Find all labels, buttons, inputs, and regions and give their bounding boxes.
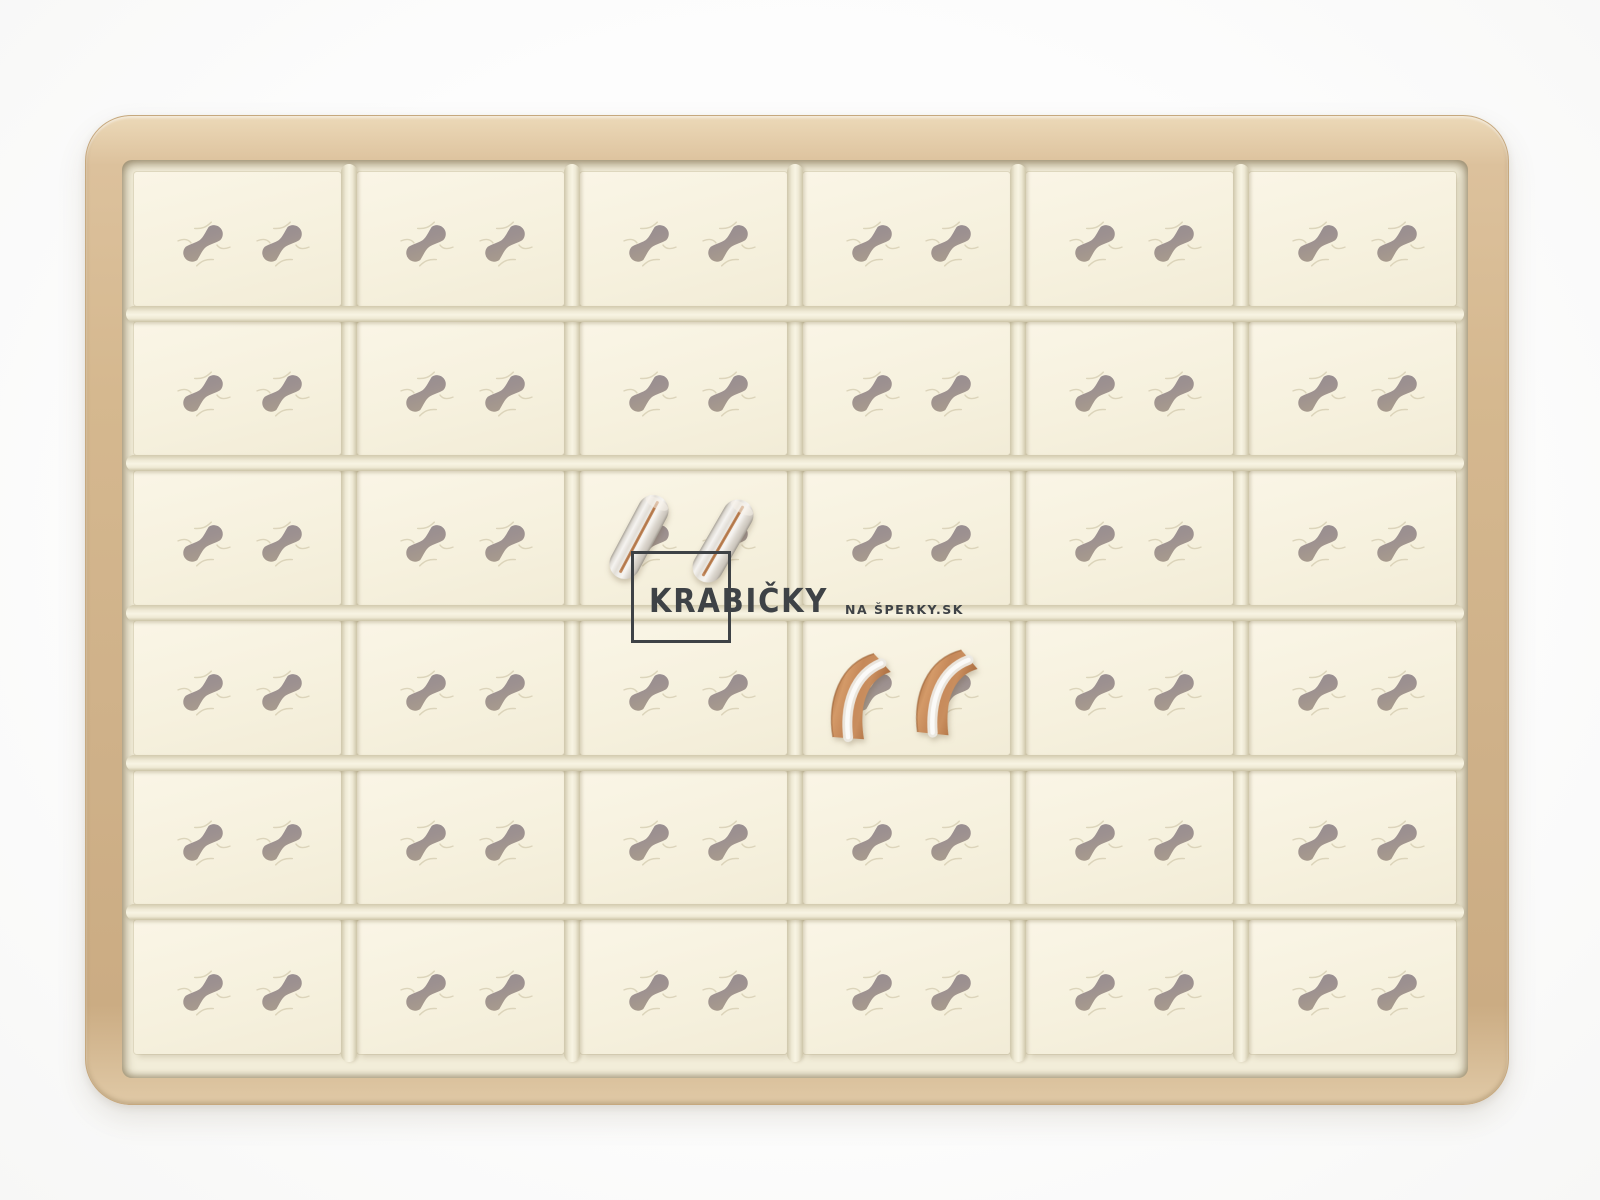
ring-slot-cutout <box>479 819 533 867</box>
ring-slot-cutout <box>1069 669 1123 717</box>
divider-rail-horizontal <box>126 455 1464 471</box>
ring-slot-cutout <box>702 969 756 1017</box>
ring-slot-cutout <box>479 220 533 268</box>
compartment-cell <box>580 621 787 755</box>
ring-slot-cutout <box>177 669 231 717</box>
ring-slot-cutout <box>256 669 310 717</box>
compartment-cell <box>1249 471 1456 605</box>
compartment-cell <box>580 172 787 306</box>
compartment-cell <box>580 771 787 905</box>
ring-slot-cutout <box>479 969 533 1017</box>
ring-slot-cutout <box>256 370 310 418</box>
ring-slot-cutout <box>1148 969 1202 1017</box>
divider-rail-horizontal <box>126 904 1464 920</box>
ring-slot-cutout <box>1148 520 1202 568</box>
ring-slot-cutout <box>177 220 231 268</box>
compartment-cell <box>134 920 341 1054</box>
ring-slot-cutout <box>925 370 979 418</box>
tray-inner-rim <box>122 160 1468 1078</box>
divider-rail-horizontal <box>126 306 1464 322</box>
ring-slot-cutout <box>177 969 231 1017</box>
ring-slot-cutout <box>1371 969 1425 1017</box>
ring-slot-cutout <box>1371 669 1425 717</box>
ring-slot-cutout <box>256 220 310 268</box>
ring-slot-cutout <box>1292 819 1346 867</box>
compartment-cell <box>803 172 1010 306</box>
ring-slot-cutout <box>702 669 756 717</box>
compartment-grid <box>134 172 1456 1054</box>
ring-slot-cutout <box>702 370 756 418</box>
compartment-cell <box>357 471 564 605</box>
ring-slot-cutout <box>177 520 231 568</box>
ring-slot-cutout <box>1371 220 1425 268</box>
ring-slot-cutout <box>1148 370 1202 418</box>
ring-slot-cutout <box>1069 370 1123 418</box>
ring-slot-cutout <box>1148 220 1202 268</box>
ring-slot-cutout <box>846 819 900 867</box>
ring-slot-cutout <box>925 220 979 268</box>
ring-slot-cutout <box>623 819 677 867</box>
ring-slot-cutout <box>1371 370 1425 418</box>
ring-slot-cutout <box>623 220 677 268</box>
ring-slot-cutout <box>400 669 454 717</box>
ring-slot-cutout <box>1069 969 1123 1017</box>
compartment-cell <box>580 322 787 456</box>
ring-slot-cutout <box>623 370 677 418</box>
compartment-cell <box>357 771 564 905</box>
ring-slot-cutout <box>400 370 454 418</box>
compartment-cell <box>134 172 341 306</box>
wedding-ring <box>823 647 901 746</box>
compartment-cell <box>1026 471 1233 605</box>
ring-slot-cutout <box>1292 669 1346 717</box>
compartment-cell <box>1249 172 1456 306</box>
ring-slot-cutout <box>846 969 900 1017</box>
ring-slot-cutout <box>400 969 454 1017</box>
ring-slot-cutout <box>1292 370 1346 418</box>
ring-slot-cutout <box>846 370 900 418</box>
ring-slot-cutout <box>925 969 979 1017</box>
ring-slot-cutout <box>623 969 677 1017</box>
compartment-cell <box>803 771 1010 905</box>
compartment-cell <box>134 322 341 456</box>
divider-rail-horizontal <box>126 605 1464 621</box>
ring-slot-cutout <box>702 819 756 867</box>
ring-slot-cutout <box>479 520 533 568</box>
compartment-cell <box>803 322 1010 456</box>
compartment-cell <box>357 621 564 755</box>
ring-slot-cutout <box>1069 819 1123 867</box>
ring-slot-cutout <box>846 520 900 568</box>
compartment-cell <box>134 471 341 605</box>
ring-slot-cutout <box>623 669 677 717</box>
ring-slot-cutout <box>256 969 310 1017</box>
ring-slot-cutout <box>400 819 454 867</box>
ring-slot-cutout <box>1371 819 1425 867</box>
ring-slot-cutout <box>256 819 310 867</box>
compartment-cell <box>1249 621 1456 755</box>
compartment-cell <box>357 172 564 306</box>
ring-slot-cutout <box>1069 520 1123 568</box>
ring-slot-cutout <box>177 370 231 418</box>
compartment-cell <box>803 471 1010 605</box>
tray-gold-frame <box>85 115 1509 1105</box>
ring-slot-cutout <box>1069 220 1123 268</box>
ring-slot-cutout <box>846 220 900 268</box>
ring-slot-cutout <box>1148 819 1202 867</box>
compartment-cell <box>1026 172 1233 306</box>
compartment-cell <box>580 920 787 1054</box>
ring-slot-cutout <box>1371 520 1425 568</box>
compartment-cell <box>580 471 787 605</box>
ring-slot-cutout <box>1292 520 1346 568</box>
compartment-cell <box>1249 322 1456 456</box>
compartment-cell <box>1249 920 1456 1054</box>
divider-rail-horizontal <box>126 755 1464 771</box>
ring-slot-cutout <box>925 520 979 568</box>
product-photo-jewelry-tray: KRABIČKY NA ŠPERKY.SK <box>0 0 1600 1200</box>
ring-slot-cutout <box>479 669 533 717</box>
compartment-cell <box>1026 920 1233 1054</box>
ring-slot-cutout <box>400 220 454 268</box>
ring-slot-cutout <box>1148 669 1202 717</box>
ring-slot-cutout <box>400 520 454 568</box>
ring-slot-cutout <box>1292 969 1346 1017</box>
ring-slot-cutout <box>256 520 310 568</box>
compartment-cell <box>1249 771 1456 905</box>
ring-slot-cutout <box>925 819 979 867</box>
ring-slot-cutout <box>702 220 756 268</box>
compartment-cell <box>1026 771 1233 905</box>
compartment-cell <box>357 920 564 1054</box>
ring-slot-cutout <box>177 819 231 867</box>
compartment-cell <box>803 920 1010 1054</box>
compartment-cell <box>357 322 564 456</box>
ring-slot-cutout <box>1292 220 1346 268</box>
ring-slot-cutout <box>479 370 533 418</box>
compartment-cell <box>1026 322 1233 456</box>
compartment-cell <box>134 621 341 755</box>
compartment-cell <box>1026 621 1233 755</box>
wedding-ring <box>907 641 988 742</box>
compartment-cell <box>134 771 341 905</box>
